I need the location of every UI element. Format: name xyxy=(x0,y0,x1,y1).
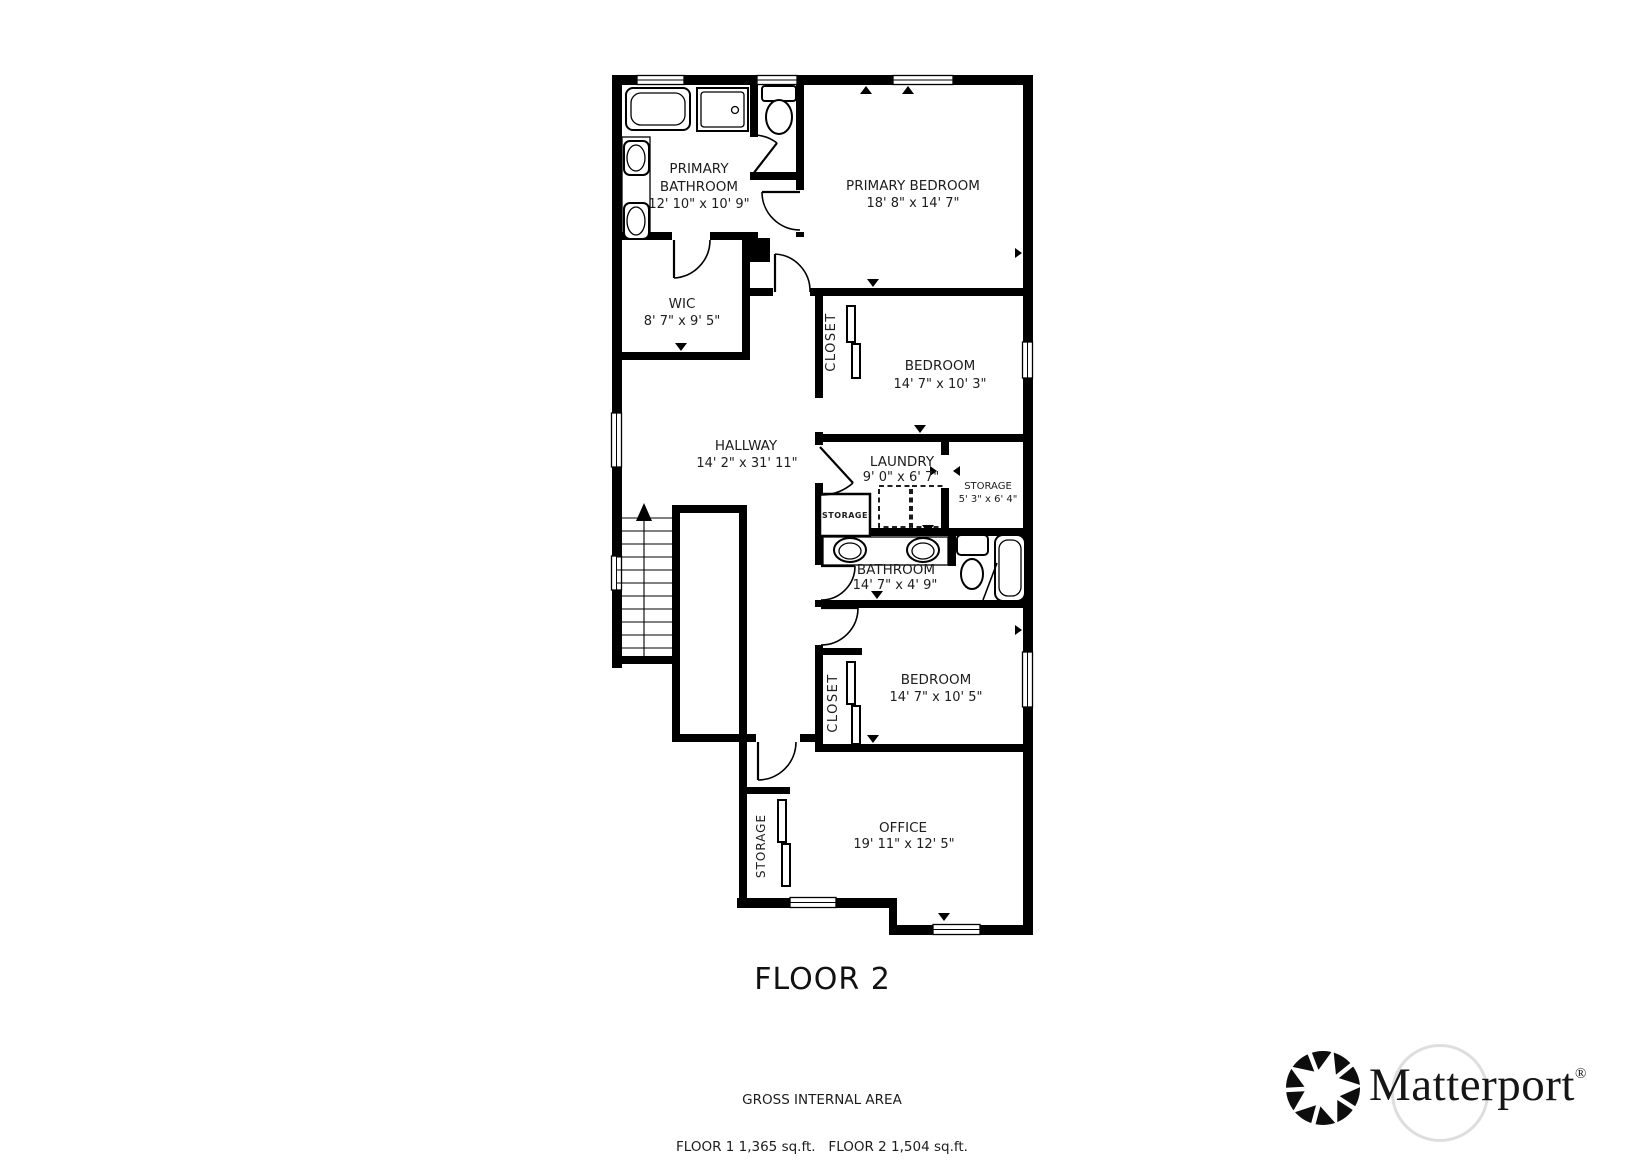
matterport-wordmark: Matterport® xyxy=(1369,1058,1587,1112)
storage-room-dims: 5' 3" x 6' 4" xyxy=(959,494,1018,505)
primary-bedroom-label: PRIMARY BEDROOM xyxy=(846,178,980,194)
primary-bathroom-dims: 12' 10" x 10' 9" xyxy=(648,197,749,212)
window xyxy=(1023,652,1033,707)
door xyxy=(762,192,800,230)
vanity-sink xyxy=(823,537,948,565)
window xyxy=(637,76,684,85)
floor-title: FLOOR 2 xyxy=(612,962,1033,997)
window xyxy=(612,413,622,467)
window xyxy=(933,925,980,935)
laundry-dims: 9' 0" x 6' 7" xyxy=(863,470,939,485)
hallway-dims: 14' 2" x 31' 11" xyxy=(696,456,797,471)
toilet xyxy=(762,86,796,134)
bathroom-dims: 14' 7" x 4' 9" xyxy=(853,578,938,593)
summary-heading: GROSS INTERNAL AREA xyxy=(562,1093,1082,1109)
bathroom-label: BATHROOM xyxy=(857,562,935,578)
door xyxy=(674,240,710,278)
wic-label: WIC xyxy=(669,296,696,312)
matterport-logo-icon xyxy=(1283,1048,1363,1128)
wic-dims: 8' 7" x 9' 5" xyxy=(644,314,720,329)
primary-bedroom-dims: 18' 8" x 14' 7" xyxy=(867,196,960,211)
window xyxy=(790,898,836,908)
storage-room-label: STORAGE xyxy=(964,481,1012,492)
matterport-logo: Matterport® xyxy=(1283,1040,1623,1140)
bedroom1-label: BEDROOM xyxy=(905,358,975,374)
floor-plan-page: PRIMARY BATHROOM 12' 10" x 10' 9" PRIMAR… xyxy=(0,0,1647,1164)
primary-bathroom-label: PRIMARY xyxy=(669,161,729,177)
door xyxy=(775,254,810,292)
door xyxy=(821,566,855,600)
bathtub xyxy=(995,535,1025,601)
closet2-label: CLOSET xyxy=(826,673,841,733)
door xyxy=(820,447,853,495)
room-labels: PRIMARY BATHROOM 12' 10" x 10' 9" PRIMAR… xyxy=(644,161,1018,878)
primary-bathroom-label2: BATHROOM xyxy=(660,179,738,195)
office-storage-label: STORAGE xyxy=(754,814,768,878)
door xyxy=(758,742,796,780)
window xyxy=(612,556,622,590)
bedroom2-label: BEDROOM xyxy=(901,672,971,688)
bathtub xyxy=(626,88,690,130)
laundry-label: LAUNDRY xyxy=(870,454,935,470)
hallway-label: HALLWAY xyxy=(715,438,778,454)
window xyxy=(757,76,797,85)
door xyxy=(821,608,858,645)
bedroom1-dims: 14' 7" x 10' 3" xyxy=(894,377,987,392)
storage-closet-label: STORAGE xyxy=(822,511,868,520)
window xyxy=(1023,342,1033,378)
stairs-up-arrow xyxy=(636,503,652,521)
office-dims: 19' 11" x 12' 5" xyxy=(853,837,954,852)
bedroom2-dims: 14' 7" x 10' 5" xyxy=(890,690,983,705)
summary-floors: FLOOR 1 1,365 sq.ft. FLOOR 2 1,504 sq.ft… xyxy=(562,1140,1082,1156)
stairs xyxy=(616,503,672,656)
registered-mark: ® xyxy=(1575,1066,1587,1082)
office-label: OFFICE xyxy=(879,820,927,836)
washer-dryer xyxy=(879,486,943,527)
shower xyxy=(697,88,748,131)
closet1-label: CLOSET xyxy=(824,312,839,372)
vanity-sink xyxy=(622,137,650,239)
window xyxy=(893,76,953,85)
toilet xyxy=(957,535,988,589)
area-summary: GROSS INTERNAL AREA FLOOR 1 1,365 sq.ft.… xyxy=(562,1062,1082,1164)
